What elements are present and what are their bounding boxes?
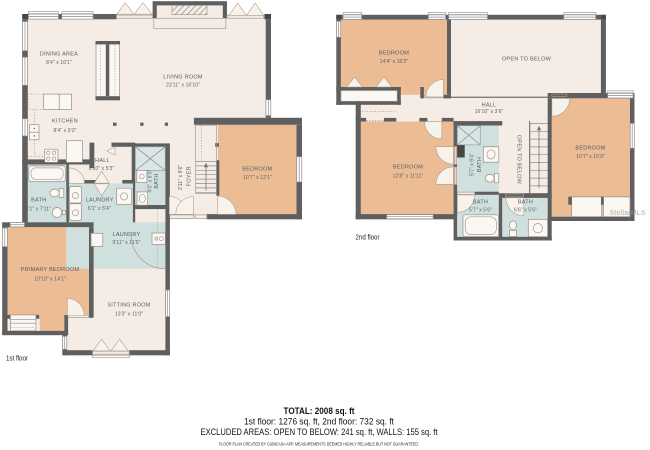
- svg-text:BATH: BATH: [477, 157, 483, 172]
- svg-text:PRIMARY BEDROOM: PRIMARY BEDROOM: [21, 267, 80, 273]
- svg-text:10'7" x 12'1": 10'7" x 12'1": [243, 175, 272, 181]
- svg-text:LAUNDRY: LAUNDRY: [113, 232, 141, 238]
- svg-text:KITCHEN: KITCHEN: [52, 119, 78, 125]
- svg-text:6'6" x 5'6": 6'6" x 5'6": [514, 208, 537, 214]
- svg-text:LAUNDRY: LAUNDRY: [86, 197, 114, 203]
- svg-text:13'3" x 11'0": 13'3" x 11'0": [115, 312, 143, 318]
- svg-text:1st floor: 1st floor: [6, 354, 28, 363]
- svg-text:BEDROOM: BEDROOM: [242, 166, 272, 172]
- svg-text:HALL: HALL: [482, 103, 497, 109]
- svg-text:BATH: BATH: [154, 173, 160, 188]
- svg-text:14'4" x 10'2": 14'4" x 10'2": [380, 59, 409, 65]
- svg-text:BEDROOM: BEDROOM: [379, 51, 409, 57]
- svg-text:StellarMLS: StellarMLS: [610, 208, 646, 217]
- svg-text:2nd floor: 2nd floor: [356, 233, 380, 242]
- svg-text:12'8" x 11'11": 12'8" x 11'11": [393, 173, 424, 179]
- svg-text:SITTING ROOM: SITTING ROOM: [107, 303, 151, 309]
- svg-text:6'1" x 5'4": 6'1" x 5'4": [88, 206, 111, 212]
- svg-text:4'0" x 6'0": 4'0" x 6'0": [147, 169, 153, 192]
- svg-text:8'4" x 10'1": 8'4" x 10'1": [46, 60, 72, 66]
- svg-text:23'11" x 16'10": 23'11" x 16'10": [166, 83, 200, 89]
- svg-text:16'10" x 3'6": 16'10" x 3'6": [475, 109, 504, 115]
- svg-text:2'10" x 5'3": 2'10" x 5'3": [89, 166, 115, 172]
- svg-text:OPEN TO BELOW: OPEN TO BELOW: [516, 135, 522, 185]
- svg-text:LIVING ROOM: LIVING ROOM: [163, 75, 203, 81]
- svg-text:EXCLUDED AREAS: OPEN TO BELOW:: EXCLUDED AREAS: OPEN TO BELOW: 241 sq. f…: [201, 427, 438, 437]
- svg-text:10'7" x 15'9": 10'7" x 15'9": [576, 154, 605, 160]
- svg-text:BATH: BATH: [518, 200, 533, 206]
- svg-text:BATH: BATH: [473, 200, 488, 206]
- svg-text:FLOOR PLAN CREATED BY CUBICASA: FLOOR PLAN CREATED BY CUBICASA APP. MEAS…: [219, 442, 419, 447]
- svg-text:FOYER: FOYER: [187, 166, 193, 186]
- svg-text:10'10" x 14'1": 10'10" x 14'1": [34, 277, 66, 283]
- svg-text:DINING AREA: DINING AREA: [40, 52, 78, 58]
- svg-text:HALL: HALL: [95, 158, 110, 164]
- svg-text:BEDROOM: BEDROOM: [393, 165, 423, 171]
- svg-text:TOTAL: 2008 sq. ft: TOTAL: 2008 sq. ft: [284, 406, 355, 416]
- svg-text:5'1" x 7'11": 5'1" x 7'11": [26, 206, 52, 212]
- svg-text:8'4" x 9'3": 8'4" x 9'3": [54, 128, 77, 134]
- svg-text:9'11" x 11'5": 9'11" x 11'5": [113, 240, 141, 246]
- svg-text:OPEN TO BELOW: OPEN TO BELOW: [502, 57, 552, 63]
- svg-text:5'7" x 9'4": 5'7" x 9'4": [470, 153, 476, 176]
- svg-text:BEDROOM: BEDROOM: [575, 146, 605, 152]
- svg-text:1st floor: 1276 sq. ft, 2nd fl: 1st floor: 1276 sq. ft, 2nd floor: 732 s…: [244, 417, 394, 427]
- svg-text:5'7" x 5'6": 5'7" x 5'6": [469, 208, 492, 214]
- svg-text:3'11" x 9'6": 3'11" x 9'6": [178, 165, 184, 191]
- svg-text:BATH: BATH: [31, 198, 46, 204]
